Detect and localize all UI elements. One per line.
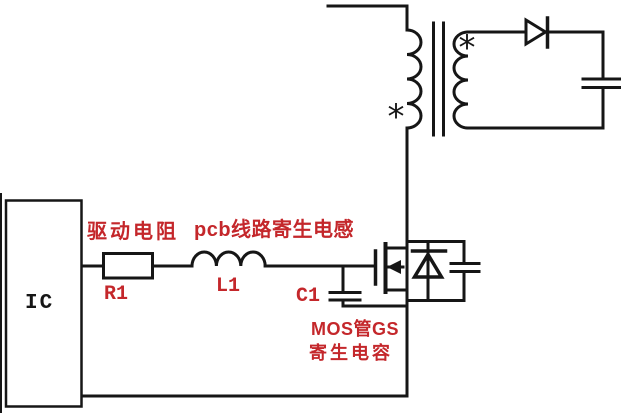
- mosfet-body-arrow-icon: [387, 260, 401, 274]
- capacitor-c1: [330, 266, 406, 306]
- inductor-ref-label: L1: [216, 277, 240, 297]
- output-diode-triangle: [526, 20, 546, 44]
- transformer-primary-winding: [407, 30, 421, 128]
- mos-gs-caption-line2: 寄生电容: [309, 344, 393, 362]
- resistor-r1: [104, 254, 153, 279]
- capacitor-ref-label: C1: [296, 287, 320, 307]
- pcb-inductance-caption: pcb线路寄生电感: [194, 220, 354, 240]
- supply-stub-wire: [328, 6, 407, 30]
- secondary-loop: [468, 18, 620, 128]
- mosfet-parasitic-branch: [407, 242, 479, 301]
- resistor-ref-label: R1: [104, 285, 128, 305]
- secondary-polarity-marker: *: [459, 28, 476, 68]
- ic-label: IC: [25, 293, 54, 314]
- circuit-diagram: * * IC 驱动电阻 R1 pcb线路寄生电感 L1 C1 MOS管GS 寄生…: [0, 0, 621, 413]
- inductor-l1: [192, 252, 265, 266]
- primary-polarity-marker: *: [388, 97, 405, 137]
- mos-gs-caption-line1: MOS管GS: [311, 320, 399, 338]
- mosfet: [376, 244, 407, 292]
- c1-bottom-lead: [343, 302, 406, 307]
- drive-resistor-caption: 驱动电阻: [87, 222, 179, 242]
